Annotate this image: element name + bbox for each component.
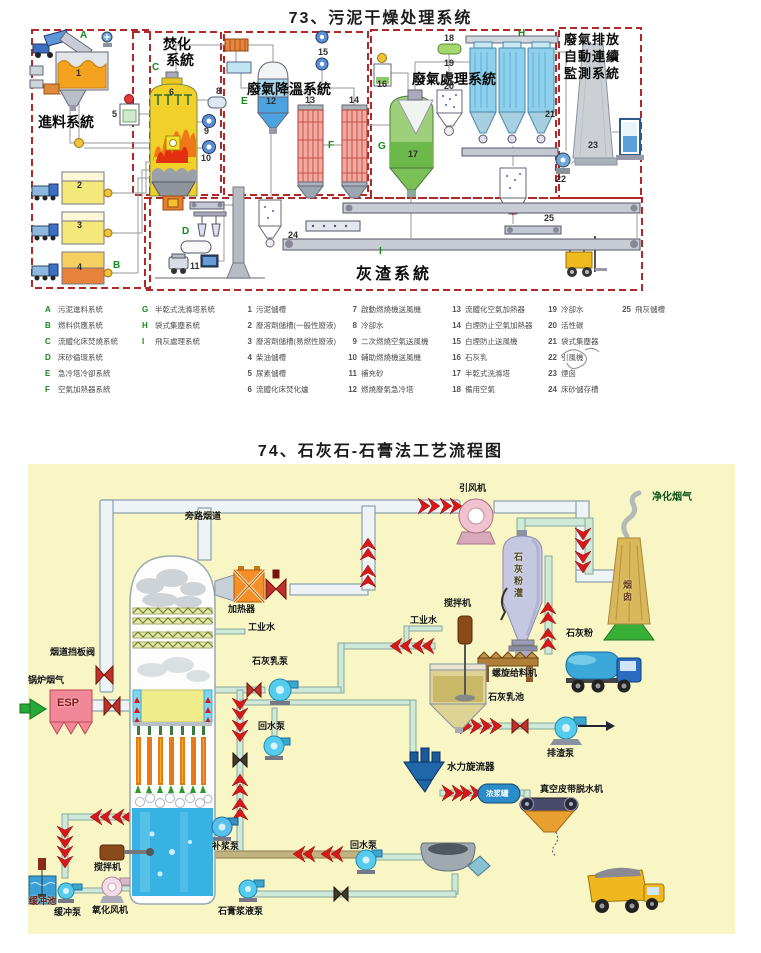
figure-74-title: 74、石灰石-石膏法工艺流程图 (0, 437, 761, 461)
cooling-water-capsule (208, 97, 226, 108)
sludge-pit (56, 52, 108, 111)
legend-entry: 6流體化床焚化爐 (243, 384, 336, 395)
legend-systems-col2: G半乾式洗滌塔系統 H袋式集塵系統 I飛灰處理系統 (142, 304, 215, 347)
legend-systems-col1: A污泥進料系統 B燃料供應系統 C流體化床焚燒系統 D床砂循環系統 E急冷塔冷卻… (45, 304, 118, 395)
hand-annotation (555, 344, 615, 374)
legend-entry: 25飛灰儲槽 (622, 304, 665, 315)
ash-conveyor-small (505, 226, 561, 234)
feeder-box (30, 80, 43, 88)
baghouse-filters (462, 36, 558, 156)
marker-A: A (80, 31, 87, 41)
legend-items-col2: 7啟動燃燒機送風機 8冷卻水 9二次燃燒空氣送風機 10輔助燃燒機送風機 11補… (348, 304, 429, 395)
marker-18: 18 (444, 34, 454, 43)
legend-entry: 16石灰乳 (452, 352, 533, 363)
marker-25: 25 (544, 214, 554, 223)
legend-entry: H袋式集塵系統 (142, 320, 215, 331)
legend-entry: 17半乾式洗滌塔 (452, 368, 533, 379)
marker-14: 14 (349, 96, 359, 105)
label-slurry-tank: 浓浆罐 (486, 789, 509, 799)
feeder-box (30, 66, 43, 75)
urea-tank (120, 95, 139, 126)
bed-sand-hopper (259, 200, 281, 247)
label-ash-system: 灰渣系統 (356, 260, 432, 284)
label-buffer-pump: 缓冲泵 (54, 907, 81, 917)
label-makeup-pump: 补浆泵 (212, 841, 239, 851)
label-heater: 加热器 (228, 604, 255, 614)
label-gypsum-slurry-pump: 石膏浆液泵 (218, 906, 263, 916)
marker-9: 9 (204, 127, 209, 136)
label-vacuum-belt: 真空皮带脱水机 (540, 784, 603, 794)
air-heater-column (298, 105, 323, 198)
label-lime-milk-pump: 石灰乳泵 (252, 656, 288, 666)
marker-17: 17 (408, 150, 418, 159)
label-damper-valve: 烟道挡板阀 (50, 647, 95, 657)
legend-entry: C流體化床焚燒系統 (45, 336, 118, 347)
label-return-pump-2: 回水泵 (350, 840, 377, 850)
marker-C: C (152, 63, 159, 73)
label-return-pump-1: 回水泵 (258, 721, 285, 731)
fuel-tank-2 (32, 172, 112, 204)
label-incineration-2: 系統 (166, 50, 194, 70)
legend-entry: 10輔助燃燒機送風機 (348, 352, 429, 363)
id-fan (457, 499, 495, 544)
marker-19: 19 (444, 59, 454, 68)
legend-entry: 13流體化空氣加熱器 (452, 304, 533, 315)
label-agitator-1: 搅拌机 (444, 598, 471, 608)
label-gas-cooling: 廢氣降溫系統 (247, 79, 331, 99)
label-boiler-gas: 锅炉烟气 (28, 675, 64, 685)
marker-16: 16 (377, 80, 387, 89)
legend-entry: 24床砂儲存槽 (548, 384, 599, 395)
legend-entry: 2廢溶劑儲槽(一般性廢液) (243, 320, 336, 331)
legend-entry: 14白煙防止空氣加熱器 (452, 320, 533, 331)
label-slag-pump: 排渣泵 (547, 748, 574, 758)
label-lime-silo: 石灰粉灌 (513, 552, 523, 600)
marker-20: 20 (444, 82, 454, 91)
legend-entry: D床砂循環系統 (45, 352, 118, 363)
marker-8: 8 (216, 87, 221, 96)
gas-heater (234, 566, 264, 602)
marker-3: 3 (77, 221, 82, 230)
dosing-box (44, 84, 59, 94)
marker-22: 22 (556, 175, 566, 184)
semi-dry-scrubber (390, 90, 433, 197)
legend-entry: G半乾式洗滌塔系統 (142, 304, 215, 315)
legend-entry: A污泥進料系統 (45, 304, 118, 315)
label-lime-powder: 石灰粉 (566, 628, 593, 638)
marker-24: 24 (288, 231, 298, 240)
marker-12: 12 (266, 97, 276, 106)
legend-entry: 15白煙防止送風機 (452, 336, 533, 347)
legend-entry: 1污泥儲槽 (243, 304, 336, 315)
marker-10: 10 (201, 154, 211, 163)
ash-conveyor-upper (343, 203, 640, 213)
marker-15: 15 (318, 48, 328, 57)
legend-entry: 11補充砂 (348, 368, 429, 379)
marker-1: 1 (76, 69, 81, 78)
legend-entry: E急冷塔冷卻系統 (45, 368, 118, 379)
label-id-fan: 引风机 (459, 483, 486, 493)
label-monitoring-3: 監測系統 (564, 63, 620, 82)
legend-entry: 12燃燒廢氣急冷塔 (348, 384, 429, 395)
diesel-tank-4 (32, 252, 112, 284)
legend-entry: B燃料供應系統 (45, 320, 118, 331)
label-screw-feeder: 螺旋给料机 (492, 668, 537, 678)
marker-13: 13 (305, 96, 315, 105)
legend-entry: F空氣加熱器系統 (45, 384, 118, 395)
marker-6: 6 (169, 88, 174, 97)
marker-I: I (379, 247, 382, 257)
cems-monitor (616, 119, 644, 160)
label-hydrocyclone: 水力旋流器 (447, 763, 495, 773)
document-page: 73、污泥干燥处理系统 (0, 0, 761, 953)
bypass-stack (227, 187, 250, 278)
vibrating-feeder (306, 221, 360, 231)
label-lime-milk-pool: 石灰乳池 (488, 692, 524, 702)
marker-E: E (241, 97, 248, 107)
lime-tanker-truck (566, 652, 641, 693)
marker-H: H (518, 29, 525, 39)
marker-F: F (328, 141, 334, 151)
marker-11: 11 (190, 262, 200, 271)
label-esp: ESP (57, 698, 79, 708)
ash-conveyor-24 (283, 239, 640, 250)
legend-entry: 19冷卻水 (548, 304, 599, 315)
pump-icon (75, 139, 84, 148)
marker-2: 2 (77, 181, 82, 190)
legend-entry: I飛灰處理系統 (142, 336, 215, 347)
marker-5: 5 (112, 110, 117, 119)
marker-21: 21 (545, 110, 555, 119)
label-clean-gas: 净化烟气 (652, 493, 692, 503)
label-buffer-pool: 缓冲池 (29, 896, 56, 906)
legend-entry: 5尿素儲槽 (243, 368, 336, 379)
legend-entry: 9二次燃燒空氣送風機 (348, 336, 429, 347)
label-industrial-water-1: 工业水 (248, 622, 275, 632)
legend-entry: 3廢溶劑儲槽(易燃性廢液) (243, 336, 336, 347)
startup-burner-blower (225, 39, 251, 73)
legend-items-col3: 13流體化空氣加熱器 14白煙防止空氣加熱器 15白煙防止送風機 16石灰乳 1… (452, 304, 533, 395)
legend-entry: 7啟動燃燒機送風機 (348, 304, 429, 315)
label-feed-system: 進料系統 (38, 112, 94, 132)
marker-4: 4 (77, 263, 82, 272)
spare-air-capsule (438, 44, 461, 54)
legend-entry: 20活性碳 (548, 320, 599, 331)
marker-D: D (182, 227, 189, 237)
legend-entry: 18備用空氣 (452, 384, 533, 395)
label-agitator-2: 搅拌机 (94, 862, 121, 872)
marker-B: B (113, 261, 120, 271)
legend-items-col5: 25飛灰儲槽 (622, 304, 665, 315)
air-heater-column (342, 105, 367, 198)
label-stack: 烟囱 (622, 580, 632, 604)
label-bypass-duct: 旁路烟道 (185, 511, 221, 521)
fuel-tank-3 (32, 212, 112, 244)
label-industrial-water-2: 工业水 (410, 615, 437, 625)
legend-entry: 4柴油儲槽 (243, 352, 336, 363)
legend-entry: 8冷卻水 (348, 320, 429, 331)
activated-carbon-hopper (437, 90, 462, 136)
label-oxidation-fan: 氧化风机 (92, 905, 128, 915)
induced-draft-fan (556, 153, 570, 174)
legend-items-col1: 1污泥儲槽 2廢溶劑儲槽(一般性廢液) 3廢溶劑儲槽(易燃性廢液) 4柴油儲槽 … (243, 304, 336, 395)
marker-23: 23 (588, 141, 598, 150)
fan-icon-top (102, 32, 112, 47)
marker-G: G (378, 142, 386, 152)
